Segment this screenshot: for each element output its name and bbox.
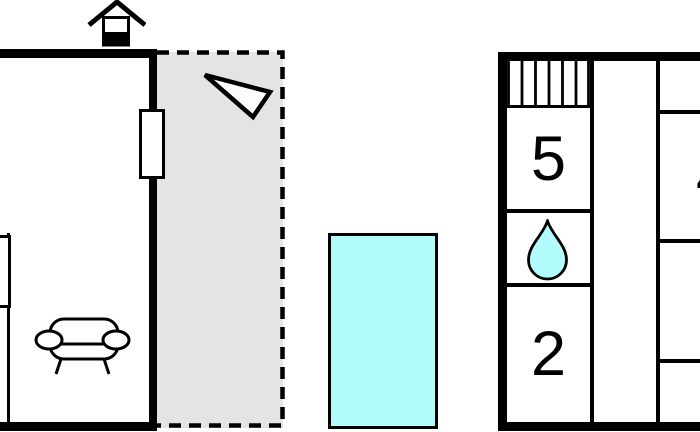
living-room-wall-bottom [0,422,157,431]
room-5-label: 5 [507,110,590,209]
annex-right-separator-2 [660,239,700,243]
water-drop-icon [526,219,569,281]
window-right-icon [139,109,165,179]
sofa-icon [30,312,135,378]
annex-wall-bottom [498,422,700,431]
annex-right-separator-3 [660,359,700,363]
living-room-wall-top [0,49,157,58]
annex-separator-below-room5 [507,209,590,213]
living-room-wall-right [149,49,157,423]
room-2-label: 2 [507,287,590,422]
house-icon [84,0,146,48]
floor-plan: 5 2 4 [0,0,700,432]
direction-triangle-icon [198,66,278,124]
annex-right-separator-1 [660,110,700,114]
annex-wall-top [498,52,700,61]
window-left-icon [0,235,11,308]
room-partial-label: 4 [696,145,700,209]
pool [328,233,438,429]
annex-wall-left [498,52,507,431]
annex-wall-inner-1 [590,58,594,426]
stairs-icon [507,61,590,108]
